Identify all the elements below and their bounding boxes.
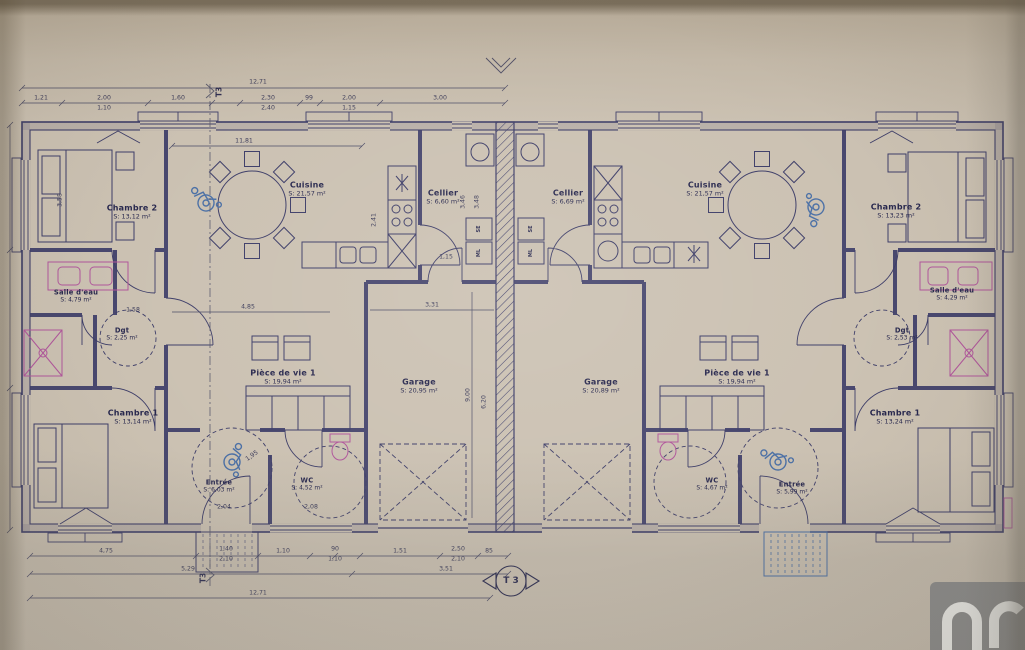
appliance-label-ml: ML [476, 249, 482, 257]
dim-int-358: 3,58 [57, 193, 64, 207]
dim-int-204: 2,04 [217, 504, 231, 511]
room-label-left-chambre2: Chambre 2 S: 13,12 m² [107, 203, 158, 220]
dim-overall-bottom: 12,71 [249, 590, 267, 597]
dim-top-9: 3,00 [433, 95, 447, 102]
dim-top-3: 1,60 [171, 95, 185, 102]
dim-int-241: 2,41 [371, 213, 378, 227]
dim-bot-7: 2,50 [451, 546, 465, 553]
plan-type-marker: T 3 [503, 576, 519, 586]
dim-bot2-1: 3,51 [439, 566, 453, 573]
dim-int-158: 1,58 [126, 307, 140, 314]
room-label-left-cuisine: Cuisine S: 21,57 m² [288, 180, 325, 197]
dim-int-115: 1,15 [439, 254, 453, 261]
dim-int-485: 4,85 [241, 304, 255, 311]
room-label-right-wc: WC S: 4,67 m² [696, 476, 727, 491]
room-label-right-salle-eau: Salle d'eau S: 4,29 m² [930, 286, 974, 301]
dim-top-7: 2,00 [342, 95, 356, 102]
floor-plan-scan: Chambre 2 S: 13,12 m² Cuisine S: 21,57 m… [0, 0, 1025, 650]
appliance-label-ml-right: ML [528, 249, 534, 257]
room-label-left-piece-vie: Pièce de vie 1 S: 19,94 m² [250, 368, 315, 385]
dim-int-331: 3,31 [425, 302, 439, 309]
dim-int-208: 2,08 [304, 504, 318, 511]
room-label-right-dgt: Dgt S: 2,53 m² [886, 326, 917, 341]
room-label-left-entree: Entrée S: 6,03 m² [203, 478, 234, 493]
dim-int-346: 3,46 [460, 195, 467, 209]
dim-int-1181: 11,81 [235, 138, 253, 145]
room-label-right-cellier: Cellier S: 6,69 m² [551, 188, 584, 205]
room-label-right-garage: Garage S: 20,89 m² [582, 377, 619, 394]
section-marker-top: T3 [215, 87, 224, 97]
dim-bot-0: 4,75 [99, 548, 113, 555]
appliance-label-se-right: SE [528, 225, 534, 232]
dim-bot-5: 1,10 [328, 556, 342, 563]
dim-bot-4: 90 [331, 546, 339, 553]
room-label-left-dgt: Dgt S: 2,25 m² [106, 326, 137, 341]
room-label-right-entree: Entrée S: 5,99 m² [776, 480, 807, 495]
dim-bot-3: 1,10 [276, 548, 290, 555]
room-label-right-chambre1: Chambre 1 S: 13,24 m² [870, 408, 921, 425]
dim-top-2: 1,10 [97, 105, 111, 112]
dim-top-0: 1,21 [34, 95, 48, 102]
room-label-left-salle-eau: Salle d'eau S: 4,79 m² [54, 288, 98, 303]
dim-top-6: 99 [305, 95, 313, 102]
dim-top-4: 2,30 [261, 95, 275, 102]
dim-bot-2: 2,10 [219, 556, 233, 563]
dim-int-620: 6,20 [481, 395, 488, 409]
dim-int-900: 9,00 [465, 388, 472, 402]
dim-top-1: 2,00 [97, 95, 111, 102]
labels-layer: Chambre 2 S: 13,12 m² Cuisine S: 21,57 m… [0, 0, 1025, 650]
dim-bot-1: 1,40 [219, 546, 233, 553]
dim-bot-9: 85 [485, 548, 493, 555]
room-label-left-cellier: Cellier S: 6,60 m² [426, 188, 459, 205]
dim-overall-top: 12,71 [249, 79, 267, 86]
room-label-left-garage: Garage S: 20,95 m² [400, 377, 437, 394]
dim-bot-6: 1,51 [393, 548, 407, 555]
room-label-right-cuisine: Cuisine S: 21,57 m² [686, 180, 723, 197]
dim-top-8: 1,15 [342, 105, 356, 112]
dim-int-348: 3,48 [474, 195, 481, 209]
room-label-right-chambre2: Chambre 2 S: 13,23 m² [871, 202, 922, 219]
dim-int-195: 1,95 [244, 449, 259, 463]
dim-top-5: 2,40 [261, 105, 275, 112]
dim-bot2-0: 5,29 [181, 566, 195, 573]
room-label-left-wc: WC S: 4,52 m² [291, 476, 322, 491]
room-label-right-piece-vie: Pièce de vie 1 S: 19,94 m² [704, 368, 769, 385]
dim-bot-8: 2,10 [451, 556, 465, 563]
appliance-label-se: SE [476, 225, 482, 232]
room-label-left-chambre1: Chambre 1 S: 13,14 m² [108, 408, 159, 425]
section-marker-bottom: T3 [199, 573, 208, 583]
